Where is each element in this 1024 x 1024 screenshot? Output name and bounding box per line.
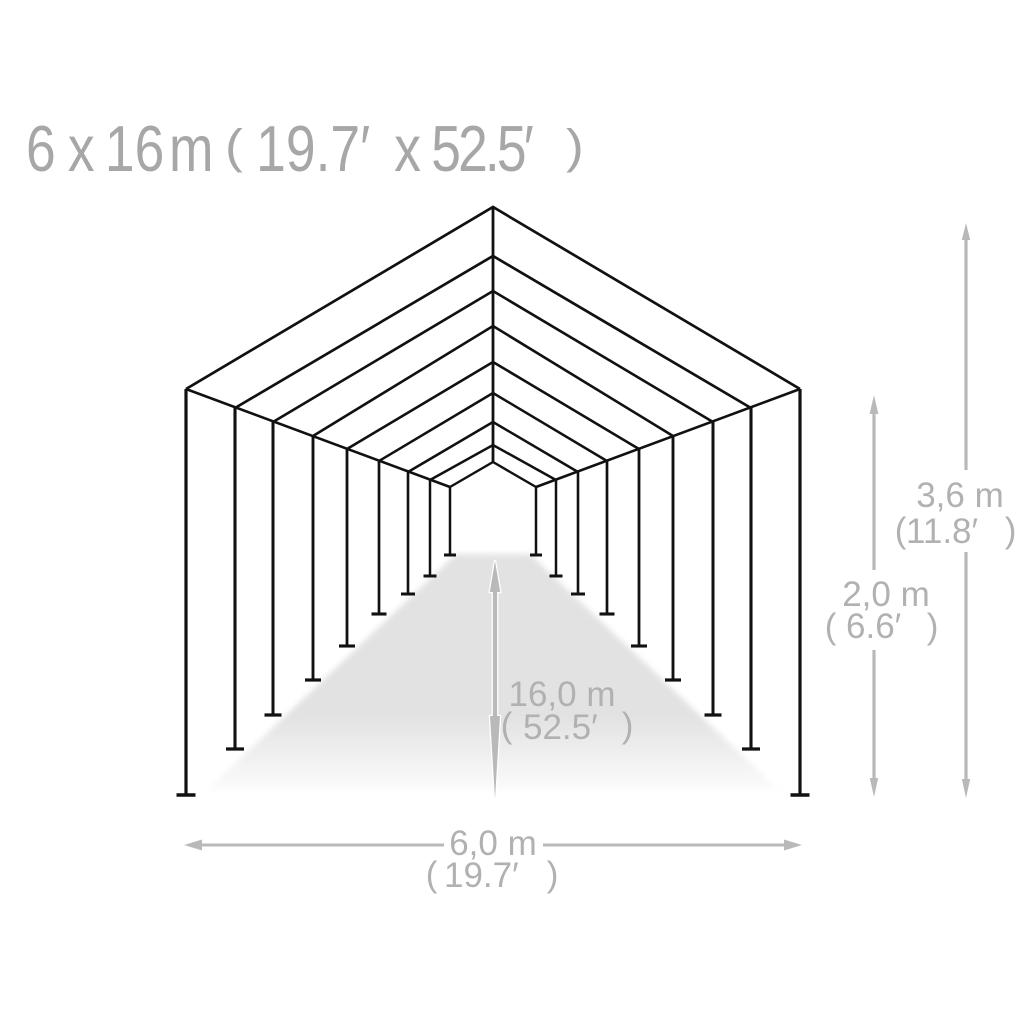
svg-text:(: ( xyxy=(895,511,907,550)
svg-text:(: ( xyxy=(501,706,513,745)
svg-text:(: ( xyxy=(426,855,438,894)
svg-text:52.5′: 52.5′ xyxy=(523,708,598,747)
svg-text:11.8′: 11.8′ xyxy=(906,512,978,551)
svg-text:): ) xyxy=(622,706,634,745)
svg-text:): ) xyxy=(1005,511,1017,550)
svg-text:19.7′: 19.7′ xyxy=(444,856,519,895)
svg-text:6.6′: 6.6′ xyxy=(846,607,901,646)
svg-text:3,6 m: 3,6 m xyxy=(916,476,1004,515)
svg-text:(: ( xyxy=(825,607,837,646)
svg-text:): ) xyxy=(927,607,939,646)
svg-text:): ) xyxy=(566,121,584,173)
svg-text:(: ( xyxy=(225,121,243,173)
svg-text:): ) xyxy=(547,855,559,894)
